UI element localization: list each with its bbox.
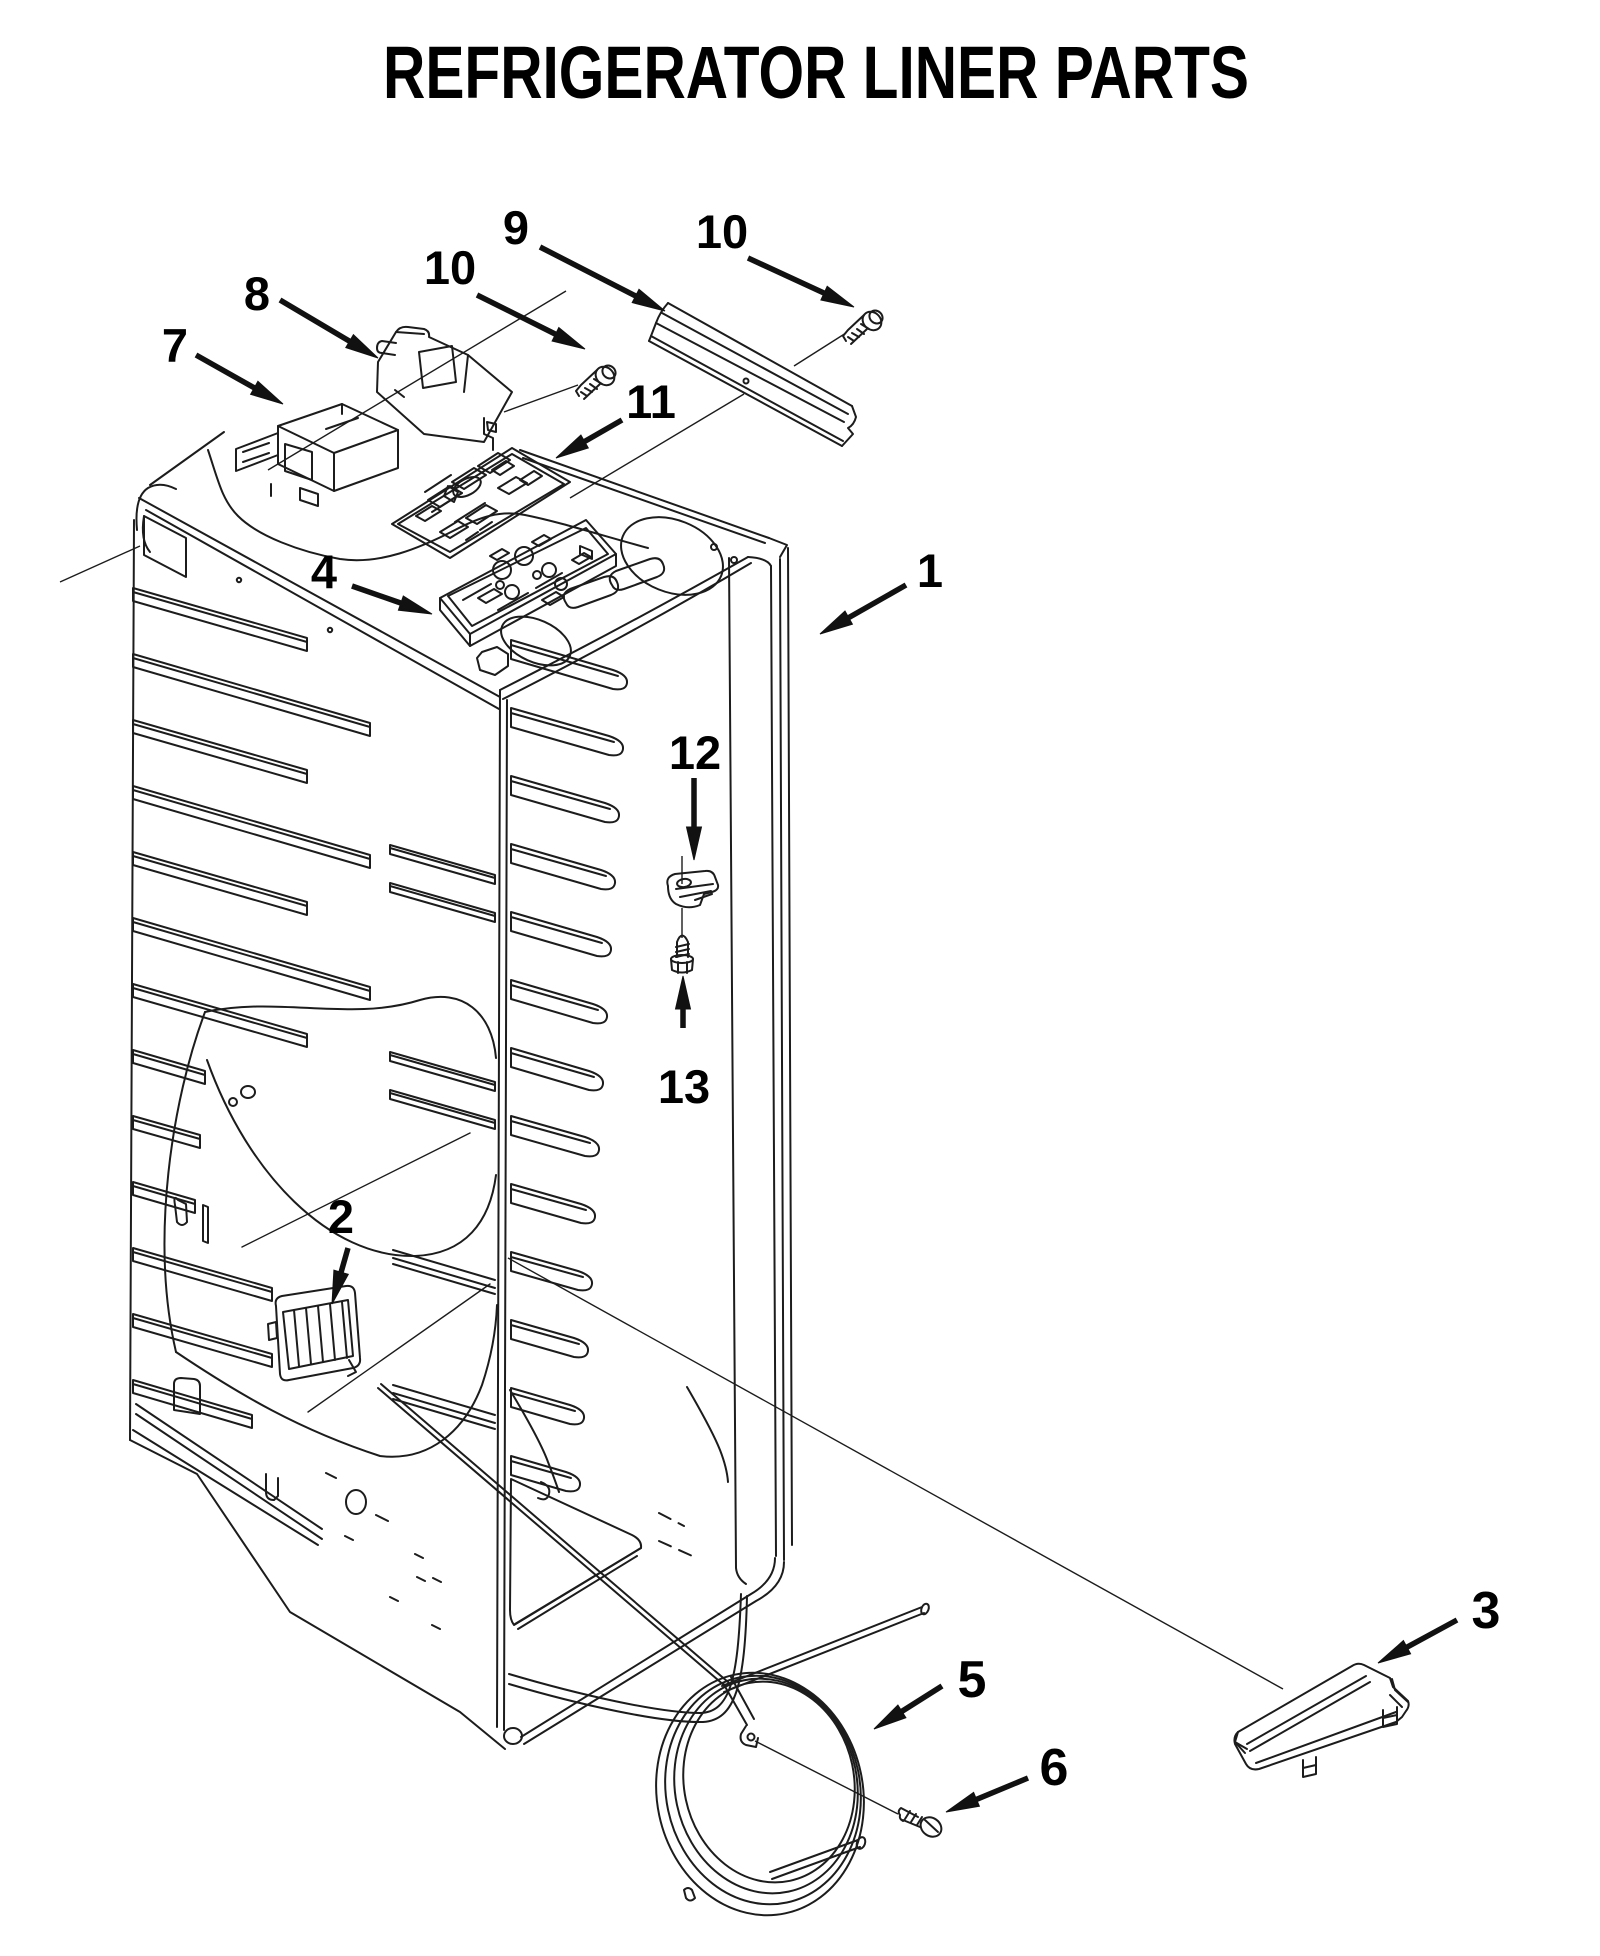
svg-text:6: 6 — [1040, 1739, 1069, 1797]
svg-text:10: 10 — [424, 241, 476, 294]
svg-text:5: 5 — [958, 1651, 987, 1709]
svg-text:REFRIGERATOR LINER PARTS: REFRIGERATOR LINER PARTS — [383, 31, 1249, 114]
svg-text:8: 8 — [244, 267, 270, 320]
svg-text:10: 10 — [696, 205, 748, 258]
svg-text:7: 7 — [162, 319, 188, 372]
svg-text:1: 1 — [917, 544, 943, 597]
svg-text:3: 3 — [1472, 1582, 1501, 1640]
svg-text:9: 9 — [503, 201, 529, 254]
svg-text:4: 4 — [311, 545, 337, 598]
svg-text:11: 11 — [626, 375, 676, 428]
svg-text:12: 12 — [669, 726, 721, 779]
svg-text:13: 13 — [658, 1060, 710, 1113]
svg-text:2: 2 — [328, 1190, 354, 1243]
